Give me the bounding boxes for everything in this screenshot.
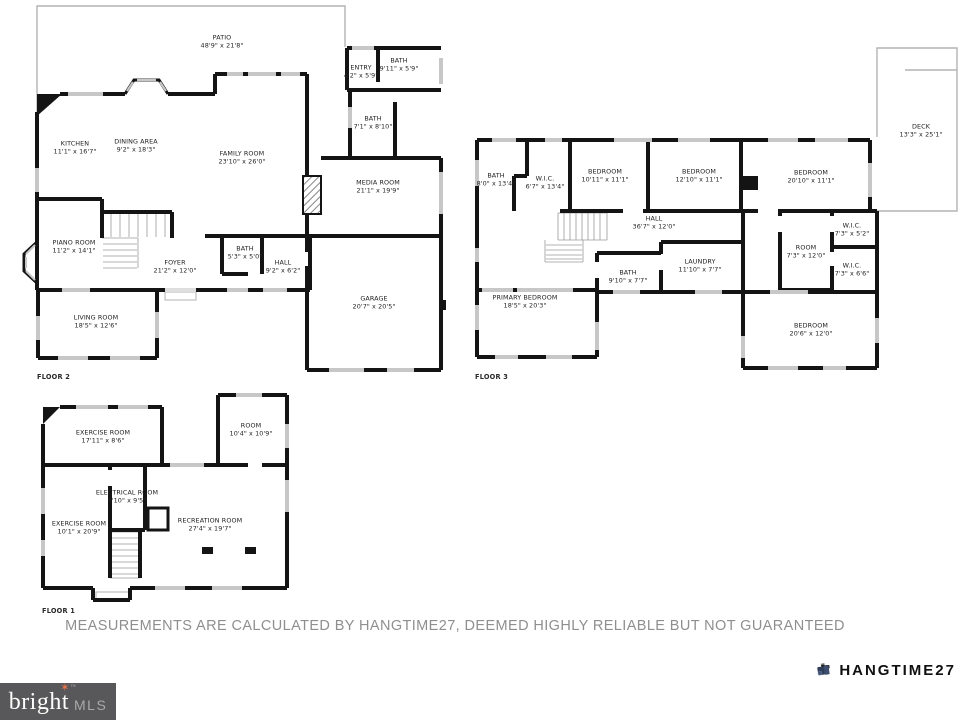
floor3-label: FLOOR 3	[475, 373, 508, 381]
star-icon: ✶	[60, 683, 70, 694]
floor3-walls	[477, 48, 957, 368]
room-label-deck: DECK13'3" x 25'1"	[900, 123, 943, 140]
trademark-symbol: ™	[71, 685, 76, 690]
mls-suffix: MLS	[74, 697, 107, 713]
room-label-room-f3: ROOM7'3" x 12'0"	[787, 244, 826, 261]
bright-mls-wordmark: bright ✶ ™	[9, 690, 69, 714]
bright-mls-logo: bright ✶ ™ MLS	[0, 683, 116, 720]
camera-icon	[816, 652, 832, 688]
room-label-bedroom-3: BEDROOM20'10" x 11'1"	[787, 169, 834, 186]
room-label-dining-area: DINING AREA9'2" x 18'3"	[114, 138, 158, 155]
room-label-bath-upper: BATH9'11" x 5'9"	[380, 57, 419, 74]
room-label-patio: PATIO48'9" x 21'8"	[201, 34, 244, 51]
room-label-hall-f3: HALL36'7" x 12'0"	[633, 215, 676, 232]
room-label-entry: ENTRY4'2" x 5'9"	[344, 64, 379, 81]
room-label-primary-bedroom: PRIMARY BEDROOM18'5" x 20'3"	[493, 294, 558, 311]
room-label-bedroom-1: BEDROOM10'11" x 11'1"	[581, 168, 628, 185]
room-label-media-room: MEDIA ROOM21'1" x 19'9"	[356, 179, 400, 196]
hangtime27-wordmark: HANGTIME27	[839, 662, 956, 679]
room-label-recreation-room: RECREATION ROOM27'4" x 19'7"	[178, 517, 242, 534]
room-label-hall-f2: HALL9'2" x 6'2"	[266, 259, 301, 276]
room-label-foyer: FOYER21'2" x 12'0"	[154, 259, 197, 276]
room-label-wic-f3-left: W.I.C.6'7" x 13'4"	[526, 175, 565, 192]
room-label-garage: GARAGE20'7" x 20'5"	[353, 295, 396, 312]
floor1-label: FLOOR 1	[42, 607, 75, 615]
room-label-exercise-room-top: EXERCISE ROOM17'11" x 8'6"	[76, 429, 130, 446]
room-label-bath-mid: BATH7'1" x 8'10"	[354, 115, 393, 132]
room-label-family-room: FAMILY ROOM23'10" x 26'0"	[218, 150, 265, 167]
floorplan-page: PATIO48'9" x 21'8" KITCHEN11'1" x 16'7" …	[0, 0, 960, 720]
room-label-laundry: LAUNDRY11'10" x 7'7"	[679, 258, 722, 275]
room-label-kitchen: KITCHEN11'1" x 16'7"	[54, 140, 97, 157]
room-label-bath-f3-left: BATH8'0" x 13'4"	[477, 172, 516, 189]
floor2-label: FLOOR 2	[37, 373, 70, 381]
room-label-bath-f3-mid: BATH9'10" x 7'7"	[609, 269, 648, 286]
room-label-bath-small: BATH5'3" x 5'0"	[228, 245, 263, 262]
disclaimer-text: MEASUREMENTS ARE CALCULATED BY HANGTIME2…	[0, 618, 910, 634]
room-label-wic-f3-lower: W.I.C.7'3" x 6'6"	[835, 262, 870, 279]
room-label-room-f1: ROOM10'4" x 10'9"	[230, 422, 273, 439]
hangtime27-logo: HANGTIME27	[816, 648, 956, 692]
room-label-living-room: LIVING ROOM18'5" x 12'6"	[74, 314, 119, 331]
room-label-piano-room: PIANO ROOM11'2" x 14'1"	[53, 239, 96, 256]
room-label-wic-f3-upper: W.I.C.7'3" x 5'2"	[835, 222, 870, 239]
room-label-bedroom-2: BEDROOM12'10" x 11'1"	[675, 168, 722, 185]
room-label-electrical-room: ELECTRICAL ROOM4'10" x 9'5"	[96, 489, 158, 506]
room-label-bedroom-4: BEDROOM20'6" x 12'0"	[790, 322, 833, 339]
room-label-exercise-room-left: EXERCISE ROOM10'1" x 20'9"	[52, 520, 106, 537]
